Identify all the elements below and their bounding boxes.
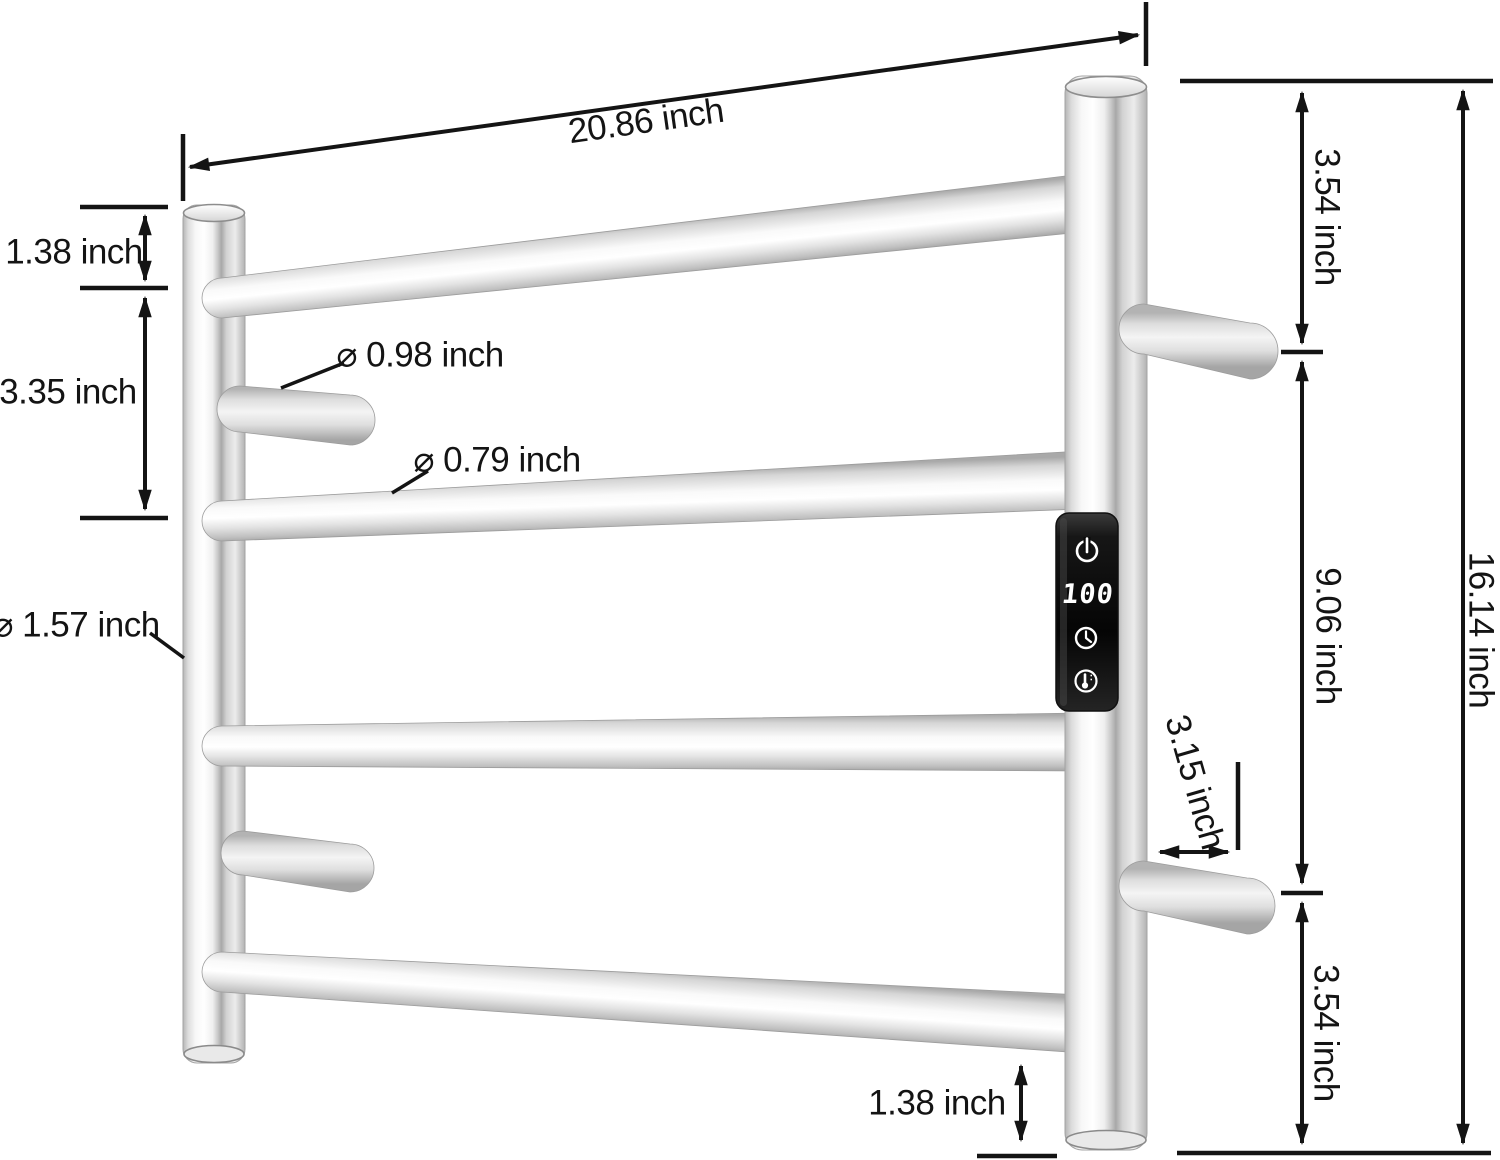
- led-display-value: 100: [1060, 579, 1115, 610]
- towel-rail-1: [202, 174, 1111, 318]
- towel-warmer-rack: 100: [183, 76, 1278, 1150]
- towel-rails: [202, 174, 1111, 1053]
- control-panel: 100: [1056, 513, 1118, 711]
- dim-right-middle-gap-label: 9.06 inch: [1311, 567, 1346, 705]
- dim-left-top-gap-label: 1.38 inch: [5, 235, 143, 270]
- dim-right-bottom-gap-label: 3.54 inch: [1309, 964, 1344, 1102]
- dim-left-rail-gap-label: 3.35 inch: [0, 375, 137, 410]
- left-post-top-cap: [184, 205, 245, 222]
- diagram-canvas: 100: [0, 0, 1500, 1160]
- dim-post-diameter-label: ⌀ 1.57 inch: [0, 608, 160, 643]
- dim-right-top-gap-label: 3.54 inch: [1310, 148, 1345, 286]
- left-post: [183, 205, 245, 1064]
- left-post-bottom-cap: [184, 1046, 244, 1063]
- towel-rail-4: [202, 952, 1111, 1053]
- right-post-bottom-cap: [1066, 1131, 1146, 1150]
- led-display: 100: [1060, 579, 1115, 610]
- dim-bottom-gap-label: 1.38 inch: [868, 1086, 1006, 1121]
- dim-rail-diameter-label: ⌀ 0.79 inch: [413, 443, 580, 478]
- dim-total-height-label: 16.14 inch: [1464, 552, 1499, 709]
- dimension-diagram: 100: [0, 0, 1500, 1160]
- right-post-top-cap: [1066, 77, 1147, 98]
- towel-rail-3: [202, 713, 1111, 771]
- towel-rail-2: [202, 451, 1111, 541]
- leader-hook-diameter: [281, 363, 344, 388]
- dim-hook-diameter-label: ⌀ 0.98 inch: [336, 338, 503, 373]
